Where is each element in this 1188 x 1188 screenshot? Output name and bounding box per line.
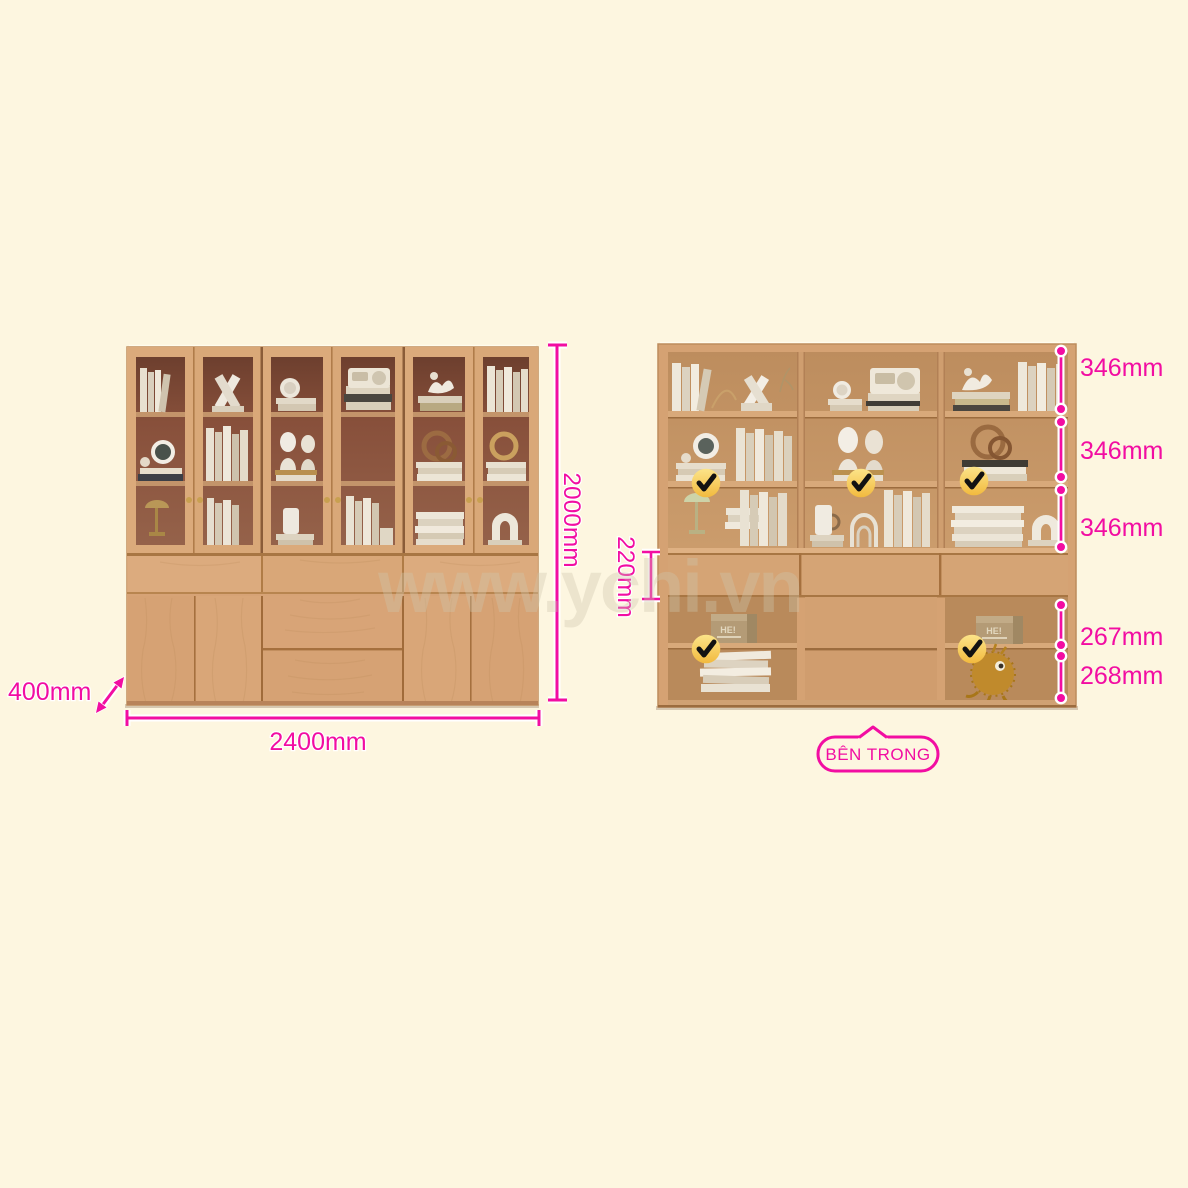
- svg-text:HE!: HE!: [986, 626, 1002, 636]
- svg-text:346mm: 346mm: [1080, 514, 1163, 542]
- svg-text:267mm: 267mm: [1080, 623, 1163, 651]
- svg-text:400mm: 400mm: [8, 678, 91, 706]
- svg-text:2400mm: 2400mm: [269, 728, 366, 756]
- svg-text:346mm: 346mm: [1080, 437, 1163, 465]
- svg-text:BÊN TRONG: BÊN TRONG: [825, 745, 930, 764]
- svg-text:346mm: 346mm: [1080, 354, 1163, 382]
- svg-text:268mm: 268mm: [1080, 662, 1163, 690]
- svg-text:www.ychi.vn: www.ychi.vn: [377, 545, 801, 628]
